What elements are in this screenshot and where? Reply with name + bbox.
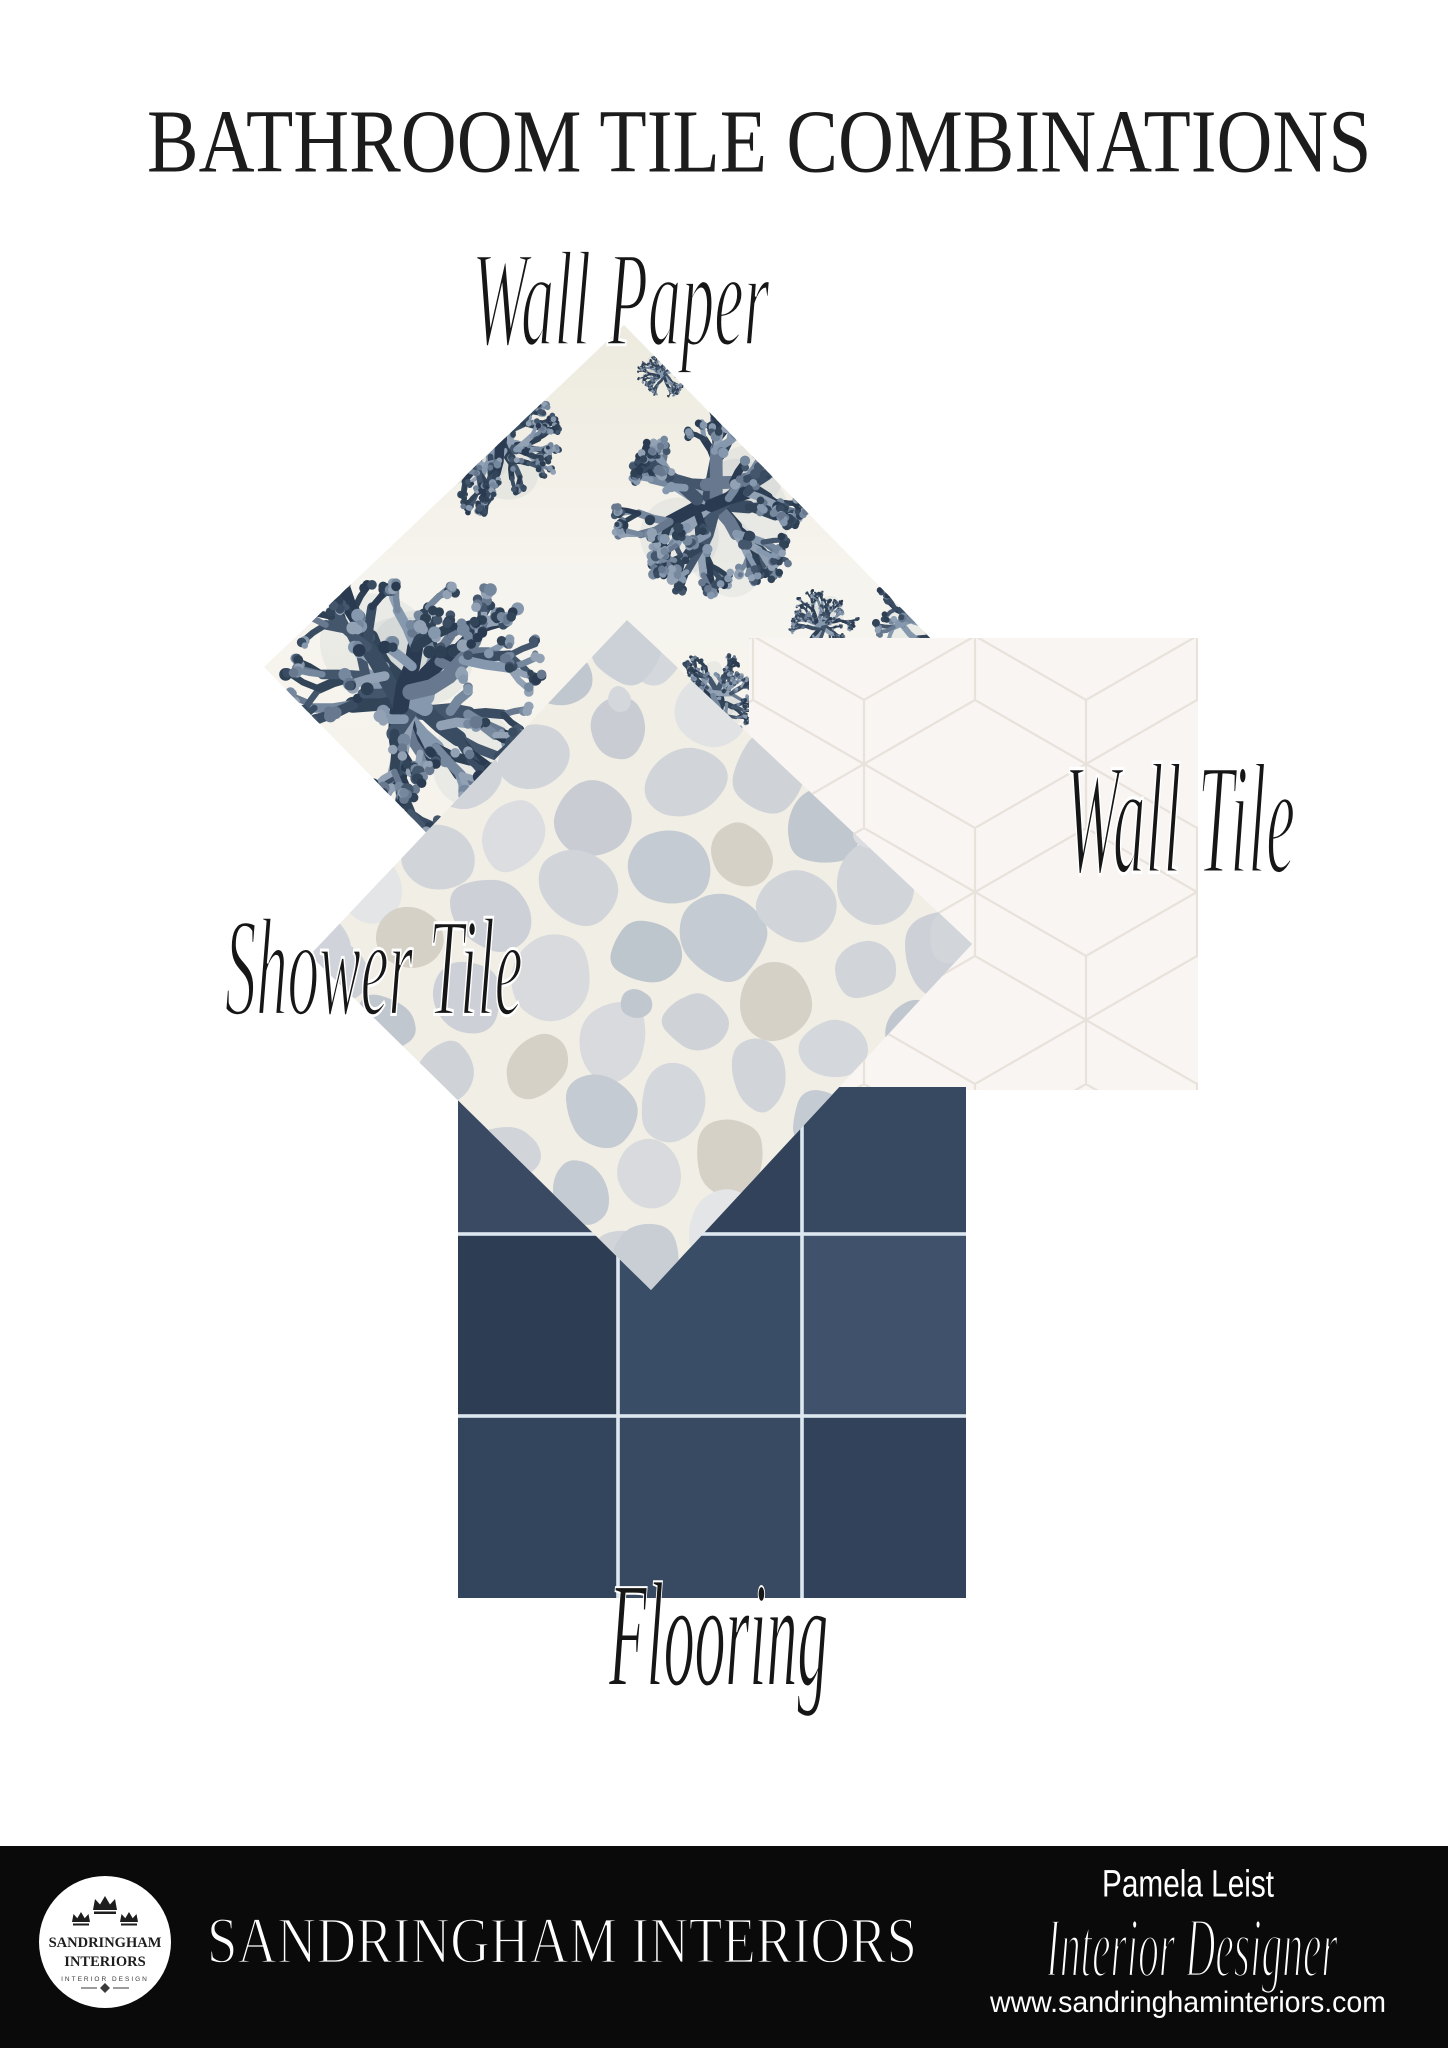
svg-text:INTERIORS: INTERIORS [64, 1954, 145, 1970]
svg-text:SANDRINGHAM: SANDRINGHAM [49, 1935, 162, 1951]
svg-text:INTERIOR DESIGN: INTERIOR DESIGN [61, 1976, 149, 1983]
